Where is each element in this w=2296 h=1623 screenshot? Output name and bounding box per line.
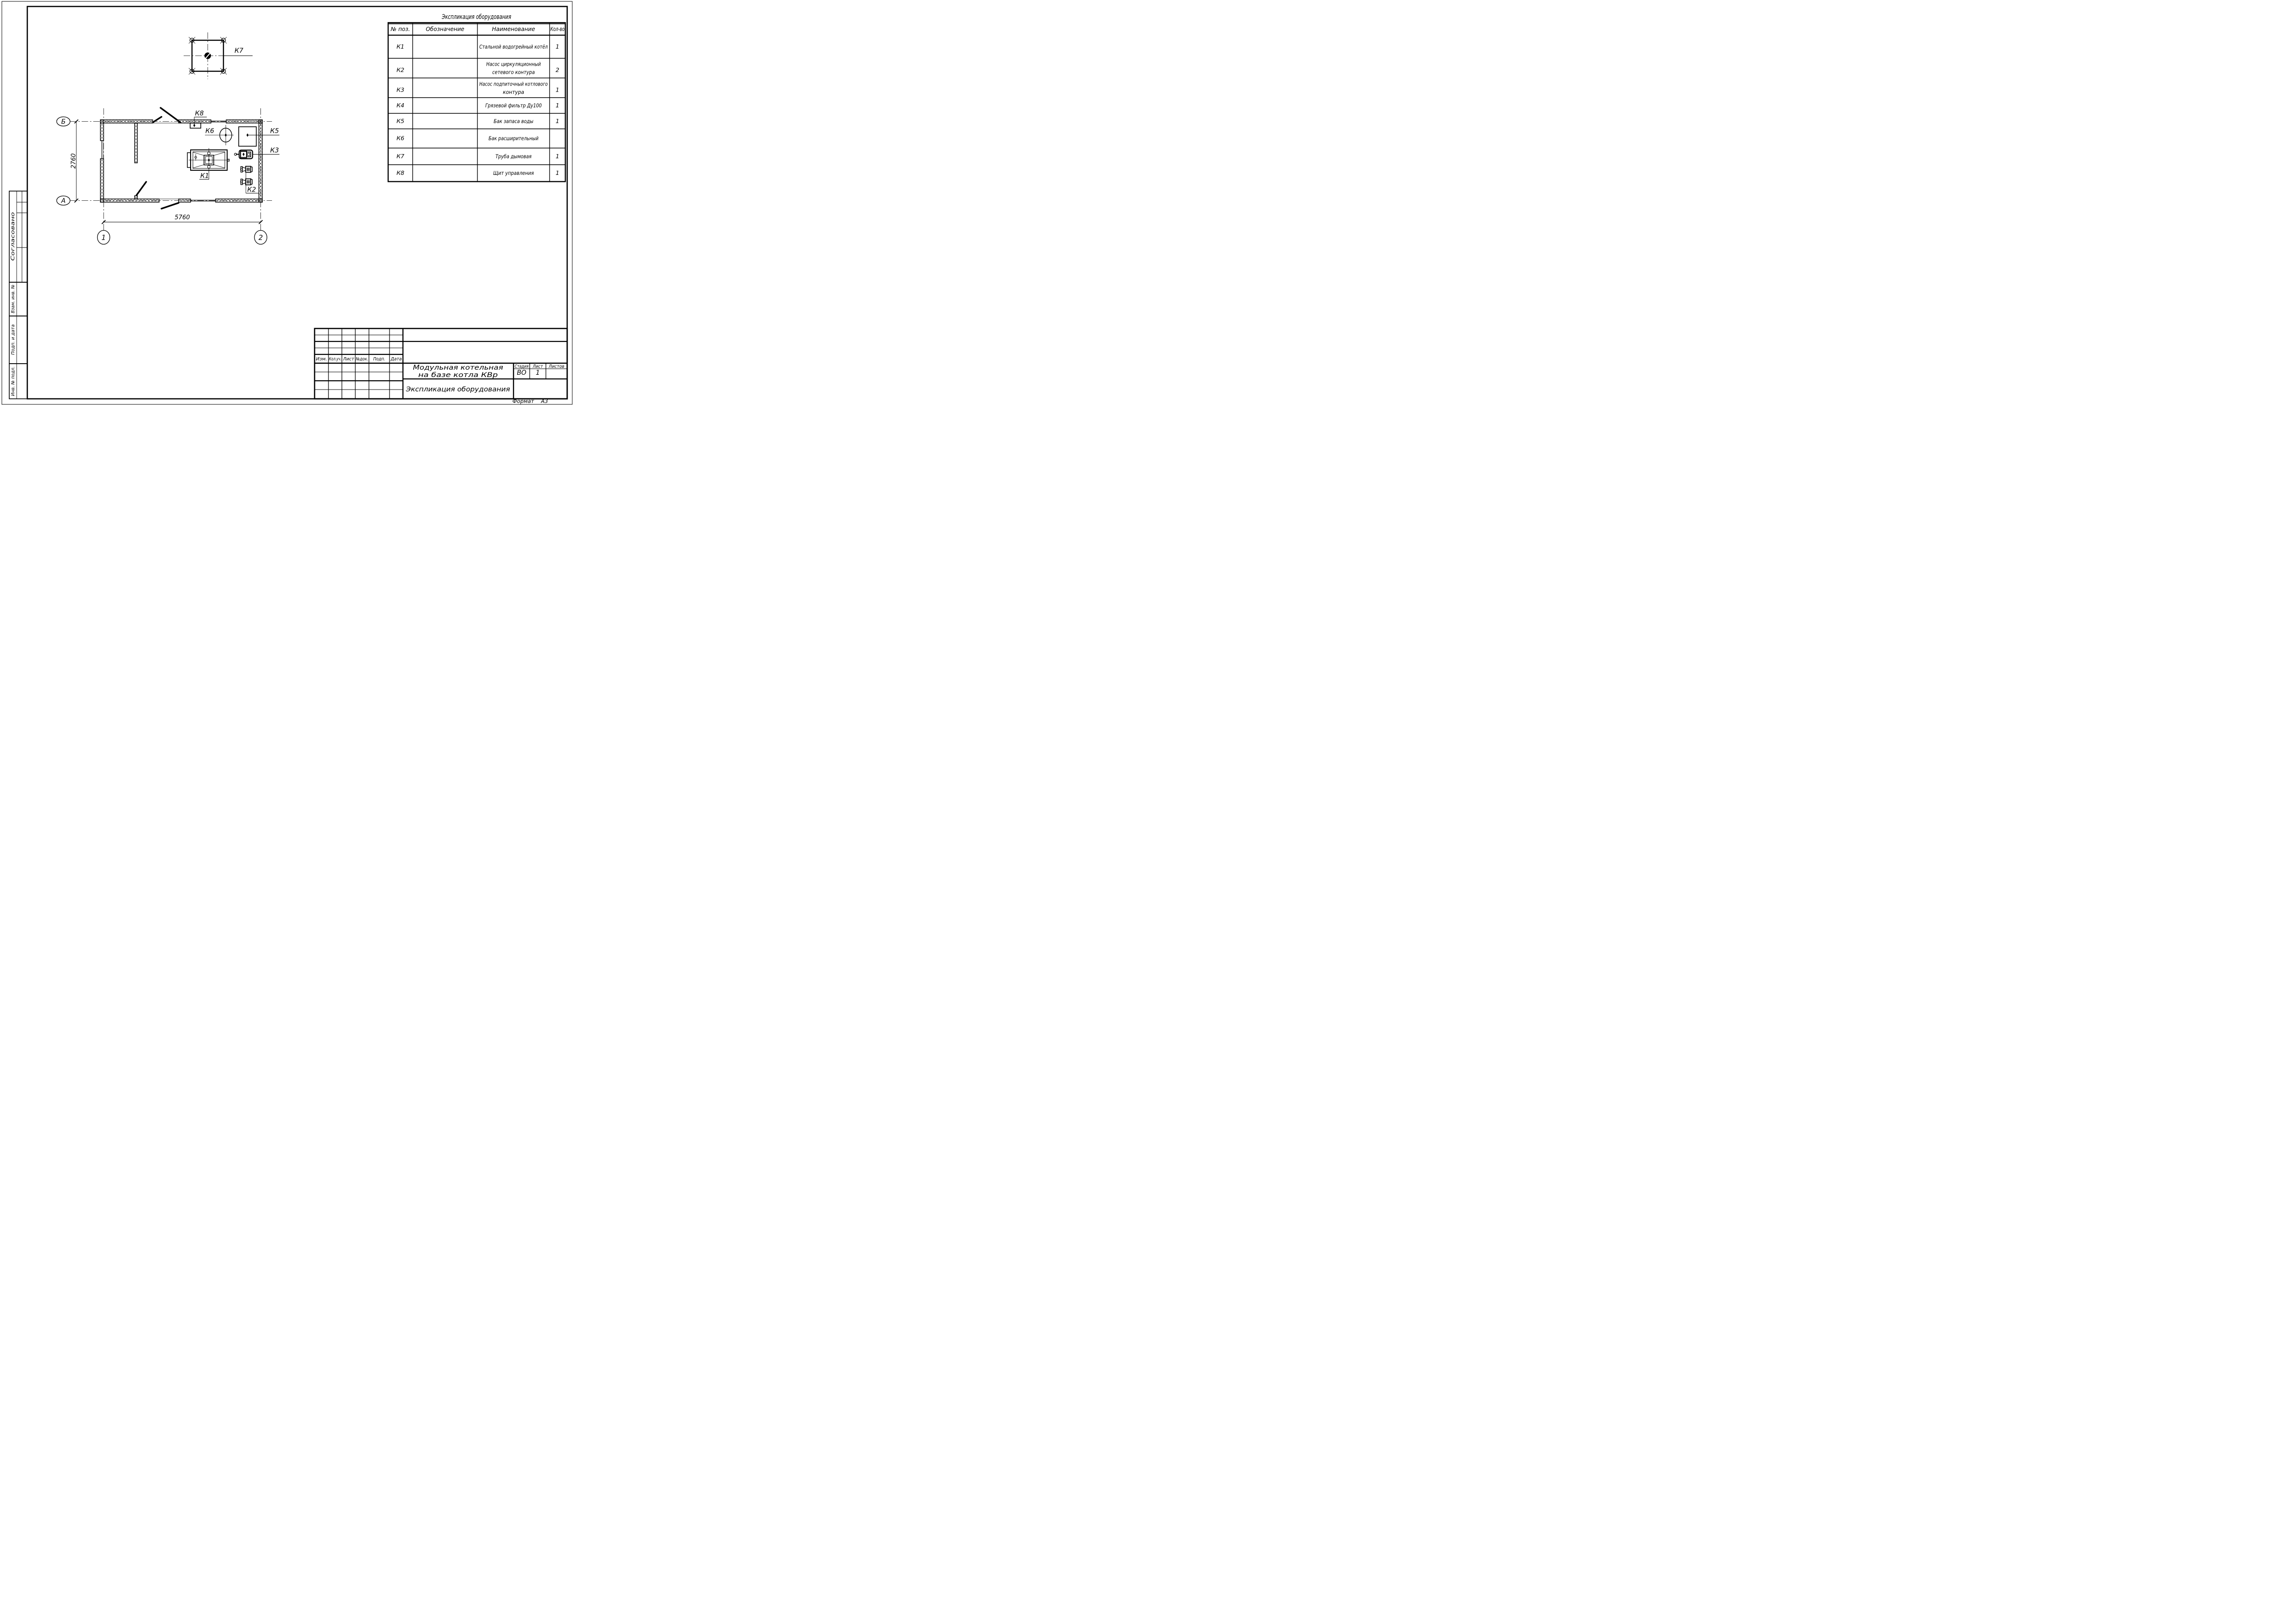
control-panel-k8: К8 (190, 110, 207, 129)
row-pos: К2 (396, 67, 404, 74)
drawing-canvas: Согласовано Взам. инв. № Подп. и дата Ин… (0, 0, 574, 406)
col-header-designation: Обозначение (426, 26, 464, 32)
row-pos: К5 (396, 118, 404, 124)
row-pos: К3 (396, 87, 404, 93)
row-pos: К1 (396, 43, 404, 50)
strip-label-inv-orig: Инв. № подл. (11, 366, 16, 396)
stamp-col-podp: Подп. (373, 357, 385, 362)
stamp-col-list: Лист (343, 357, 354, 362)
svg-text:А: А (61, 198, 66, 205)
row-qty: 1 (556, 169, 559, 176)
boiler-k1: К1 (187, 148, 229, 180)
table-row: К3 Насос подпиточный котлового контура 1 (396, 81, 559, 96)
row-name: Труба дымовая (495, 153, 532, 160)
equipment-table: Экспликация оборудования № поз. Обозначе… (388, 13, 565, 182)
table-row: К8 Щит управления 1 (396, 169, 559, 176)
sheet-label: Лист (532, 364, 544, 369)
dim-width-text: 5760 (174, 214, 190, 221)
label-k2: К2 (248, 186, 256, 194)
table-row: К2 Насос циркуляционный сетевого контура… (396, 61, 559, 76)
pump (241, 167, 253, 173)
row-name: Грязевой фильтр Ду100 (485, 102, 542, 109)
label-k7: К7 (235, 47, 243, 55)
row-qty: 1 (556, 153, 559, 160)
axis-bubble-a: А (57, 196, 70, 205)
label-k1: К1 (200, 173, 209, 180)
col-header-pos: № поз. (390, 26, 410, 32)
walls (100, 120, 262, 202)
row-qty: 1 (556, 118, 559, 124)
partition-wall (135, 123, 137, 163)
format-label: Формат (513, 398, 534, 404)
row-name: Насос подпиточный котлового (479, 81, 548, 87)
anchor-mark (189, 68, 195, 74)
project-name-line1: Модульная котельная (413, 364, 503, 372)
axis-bubble-2: 2 (254, 230, 267, 244)
stage-value: ВО (517, 369, 526, 377)
row-name2: сетевого контура (492, 69, 535, 75)
row-pos: К4 (396, 102, 404, 109)
sheet-value: 1 (536, 369, 540, 377)
svg-text:2: 2 (259, 234, 263, 242)
svg-text:Б: Б (61, 118, 66, 126)
anchor-mark (189, 37, 195, 43)
row-qty: 1 (556, 102, 559, 109)
table-row: К4 Грязевой фильтр Ду100 1 (396, 102, 559, 109)
strip-label-replace-inv: Взам. инв. № (11, 285, 16, 313)
row-name: Насос циркуляционный (486, 61, 541, 68)
row-qty: 1 (556, 87, 559, 93)
project-name-line2: на базе котла КВр (418, 372, 498, 379)
table-row: К6 Бак расширительный (396, 135, 538, 142)
doc-title: Экспликация оборудования (405, 386, 510, 393)
axis-bubble-b: Б (57, 117, 70, 126)
table-row: К1 Стальной водогрейный котёл 1 (396, 43, 559, 50)
label-k8: К8 (195, 110, 204, 118)
floor-plan: 2760 5760 Б А 1 2 (57, 32, 280, 244)
row-pos: К8 (396, 169, 404, 176)
sheets-label: Листов (548, 364, 564, 369)
label-k5: К5 (270, 128, 279, 135)
drawing-sheet: Согласовано Взам. инв. № Подп. и дата Ин… (0, 0, 574, 406)
axis-bubble-1: 1 (98, 230, 110, 244)
door-leaf (161, 203, 179, 209)
dim-height-text: 2760 (70, 153, 77, 168)
dimension-2760: 2760 (70, 120, 78, 203)
dimension-5760: 5760 (102, 214, 263, 224)
anchor-mark (220, 68, 227, 74)
expansion-tank-k6: К6 (205, 125, 234, 145)
side-strip: Согласовано Взам. инв. № Подп. и дата Ин… (9, 191, 27, 399)
row-name: Бак запаса воды (494, 118, 533, 124)
equipment-table-title: Экспликация оборудования (441, 13, 511, 21)
door-leaf (136, 182, 146, 195)
stamp-col-ndok: №док. (355, 357, 368, 362)
title-block: Изм. Кол.уч. Лист №док. Подп. Дата Модул… (315, 328, 567, 399)
row-name: Бак расширительный (489, 135, 538, 142)
feed-pump-k3: К3 (235, 147, 279, 159)
strip-label-sign-date: Подп. и дата (11, 324, 16, 355)
door-leaf (161, 108, 180, 123)
row-pos: К6 (396, 135, 404, 142)
format-note: Формат А3 (513, 398, 548, 404)
stamp-col-izm: Изм. (316, 357, 327, 362)
format-value: А3 (540, 398, 548, 404)
col-header-qty: Кол-во (551, 26, 565, 32)
svg-text:1: 1 (101, 234, 106, 242)
stage-label: Стадия (515, 364, 529, 369)
col-header-name: Наименование (492, 26, 535, 32)
stamp-col-data: Дата (390, 357, 402, 362)
row-name: Щит управления (493, 170, 534, 176)
label-k6: К6 (205, 128, 214, 135)
anchor-mark (220, 37, 227, 43)
table-row: К7 Труба дымовая 1 (396, 153, 559, 160)
row-qty: 2 (556, 67, 559, 74)
pump (241, 179, 253, 185)
row-name2: контура (503, 89, 524, 95)
stamp-col-koluch: Кол.уч. (329, 357, 341, 362)
row-pos: К7 (396, 153, 404, 160)
chimney-detail-k7: К7 (184, 32, 253, 79)
label-k3: К3 (270, 147, 279, 155)
strip-label-agreed: Согласовано (10, 212, 16, 261)
row-name: Стальной водогрейный котёл (479, 43, 548, 50)
circulation-pumps-k2: К2 (241, 167, 259, 194)
row-qty: 1 (556, 43, 559, 50)
table-row: К5 Бак запаса воды 1 (396, 118, 559, 124)
